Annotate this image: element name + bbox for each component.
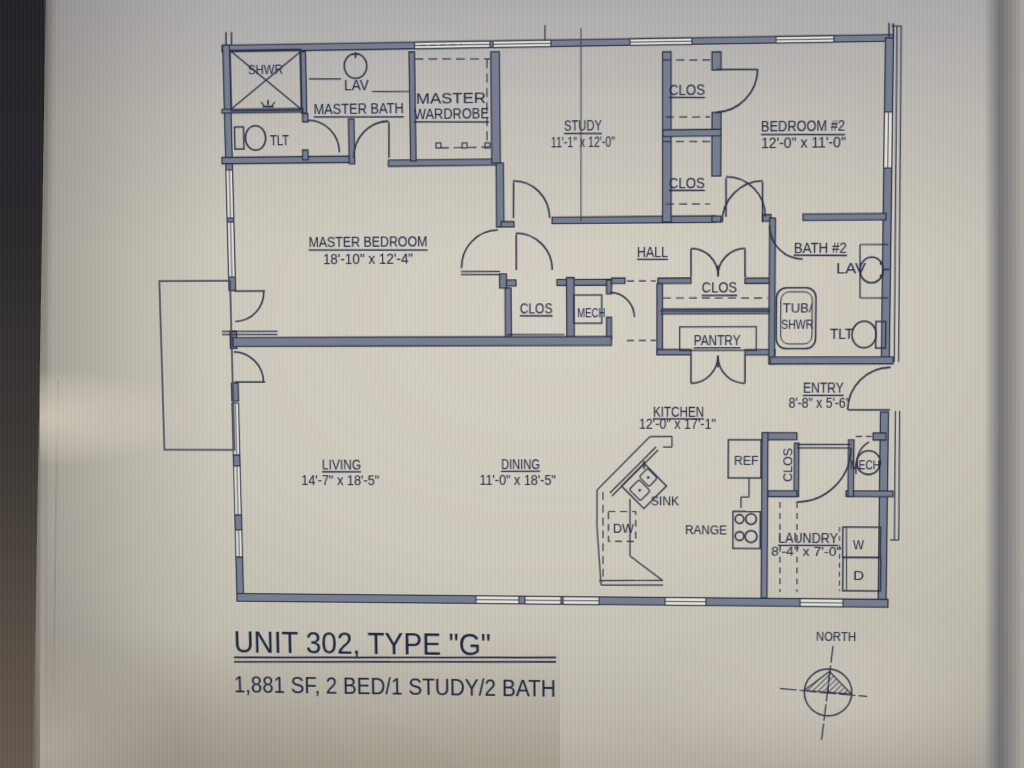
svg-text:SINK: SINK: [651, 493, 679, 508]
svg-text:WARDROBE: WARDROBE: [414, 106, 489, 124]
svg-text:HALL: HALL: [637, 244, 668, 261]
svg-text:12'-0" x 11'-0": 12'-0" x 11'-0": [761, 134, 846, 152]
svg-text:CLOS: CLOS: [702, 279, 738, 296]
svg-text:11'-0" x 18'-5": 11'-0" x 18'-5": [479, 472, 556, 488]
svg-text:18'-10" x 12'-4": 18'-10" x 12'-4": [323, 251, 414, 268]
svg-text:1,881 SF, 2 BED/1 STUDY/2 BATH: 1,881 SF, 2 BED/1 STUDY/2 BATH: [234, 673, 557, 703]
svg-text:CLOS: CLOS: [669, 81, 705, 98]
svg-text:W: W: [853, 537, 865, 552]
svg-text:STUDY: STUDY: [564, 117, 602, 135]
svg-text:LIVING: LIVING: [322, 458, 361, 474]
svg-text:12'-0" x 17'-1": 12'-0" x 17'-1": [639, 417, 716, 433]
svg-text:MASTER BATH: MASTER BATH: [313, 101, 404, 119]
svg-text:TUB/: TUB/: [783, 302, 813, 317]
svg-text:DINING: DINING: [501, 457, 540, 473]
svg-text:MASTER BEDROOM: MASTER BEDROOM: [308, 234, 427, 252]
svg-text:ENTRY: ENTRY: [803, 381, 844, 397]
svg-text:SHWR: SHWR: [781, 318, 814, 333]
svg-text:TLT: TLT: [270, 131, 290, 148]
svg-text:8'-8" x 5'-6": 8'-8" x 5'-6": [788, 396, 850, 412]
svg-text:SHWR: SHWR: [248, 61, 283, 77]
svg-text:CLOS: CLOS: [781, 448, 795, 482]
svg-text:RANGE: RANGE: [685, 522, 727, 537]
svg-text:TLT: TLT: [830, 326, 854, 343]
svg-text:14'-7" x 18'-5": 14'-7" x 18'-5": [301, 474, 379, 490]
svg-text:UNIT 302, TYPE "G": UNIT 302, TYPE "G": [233, 626, 491, 662]
svg-text:REF: REF: [734, 452, 759, 467]
svg-text:MECH: MECH: [577, 305, 605, 320]
svg-text:BATH #2: BATH #2: [794, 240, 847, 257]
svg-text:D: D: [853, 568, 864, 583]
svg-text:MECH: MECH: [850, 458, 880, 472]
svg-text:DW: DW: [613, 521, 634, 536]
svg-text:PANTRY: PANTRY: [694, 332, 741, 348]
svg-text:NORTH: NORTH: [816, 629, 856, 644]
svg-text:11'-1" x 12'-0": 11'-1" x 12'-0": [551, 134, 615, 151]
svg-text:8'-4" x 7'-0": 8'-4" x 7'-0": [771, 544, 842, 560]
svg-text:CLOS: CLOS: [669, 174, 705, 191]
svg-text:LAV: LAV: [344, 76, 370, 93]
svg-text:LAV: LAV: [836, 260, 867, 277]
svg-text:CLOS: CLOS: [520, 300, 553, 316]
svg-text:BEDROOM #2: BEDROOM #2: [761, 117, 845, 136]
